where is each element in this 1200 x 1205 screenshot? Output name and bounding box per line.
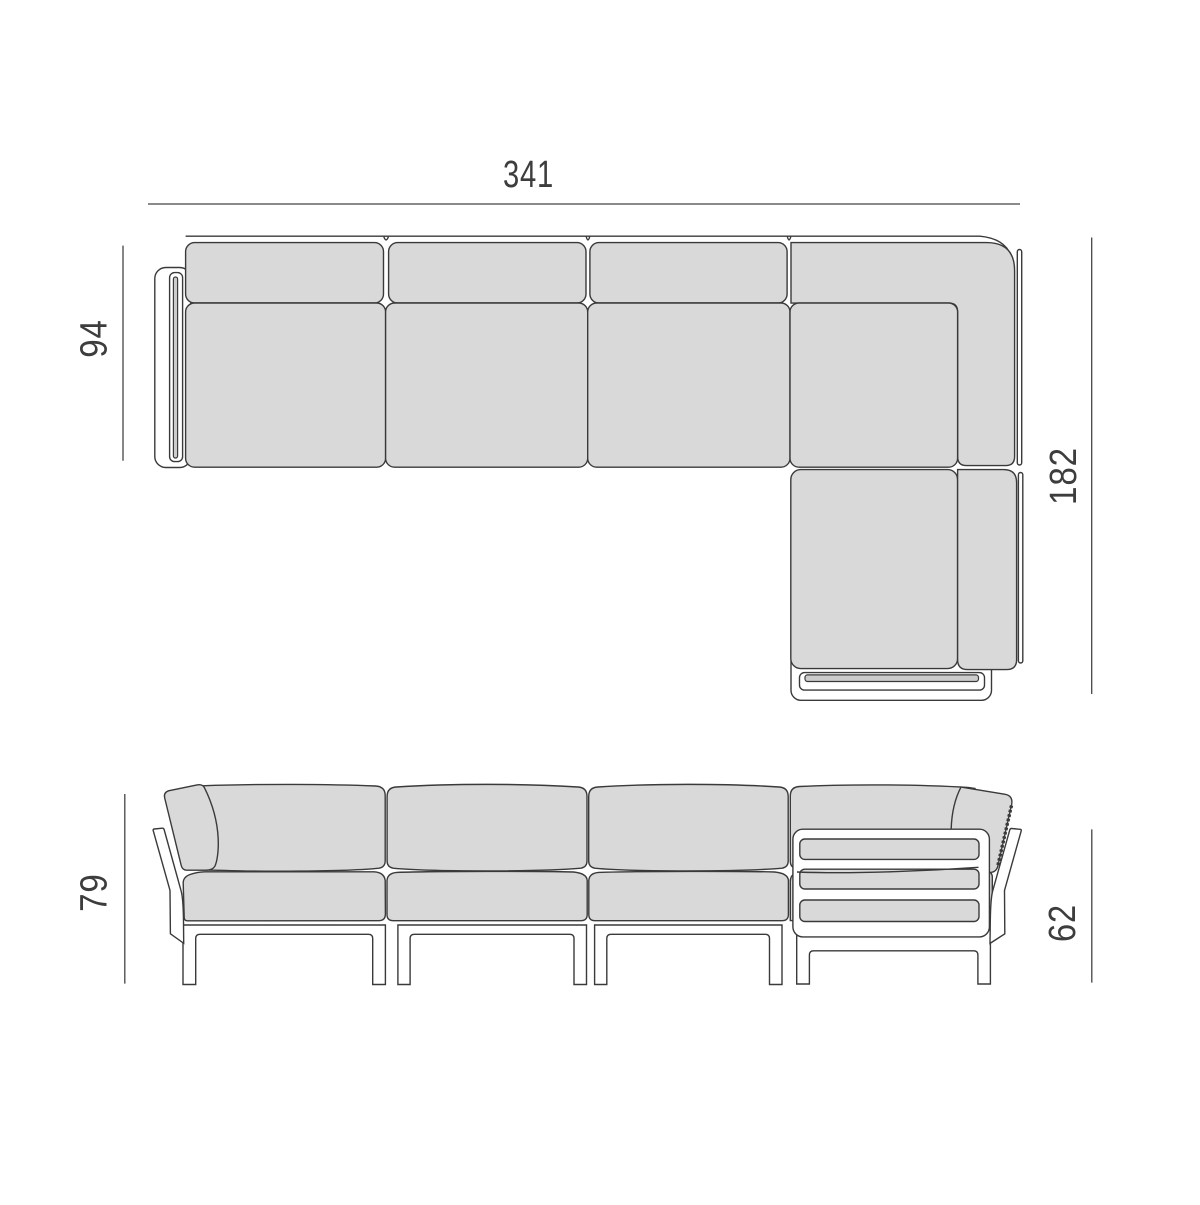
svg-text:341: 341 [503,154,554,196]
svg-text:79: 79 [74,873,116,912]
svg-text:62: 62 [1042,904,1084,942]
svg-text:94: 94 [74,319,116,358]
svg-text:182: 182 [1043,447,1085,505]
